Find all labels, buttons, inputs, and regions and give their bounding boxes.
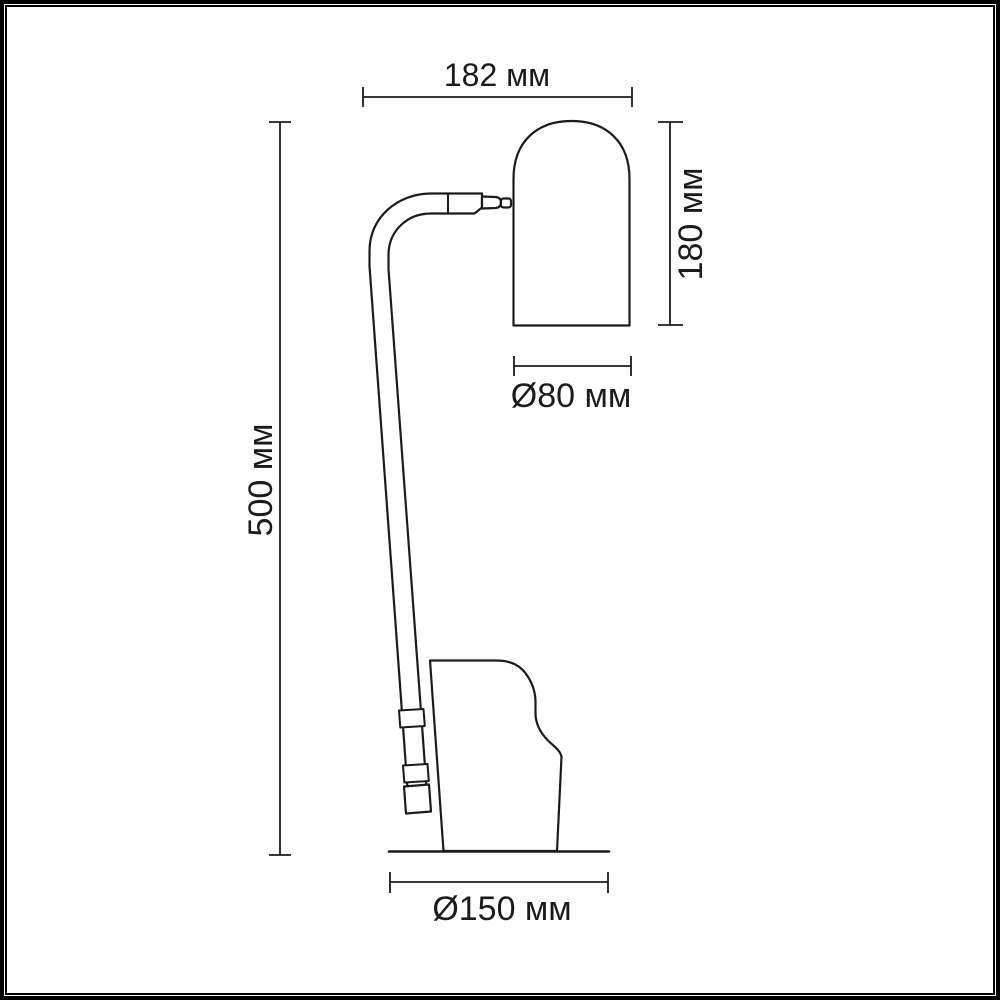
lamp-dimension-drawing: 182 мм 180 мм Ø80 мм 500 мм [0,0,1000,1000]
dim-total-height-label: 500 мм [242,424,280,537]
lamp-base-shape [430,661,562,852]
dim-head-width-label: 182 мм [444,57,550,93]
arm-connector-ring [501,199,511,208]
dim-total-height: 500 мм [242,122,291,855]
arm-foot-shape [404,785,431,814]
dim-base-diameter: Ø150 мм [390,872,608,928]
dim-shade-diameter-label: Ø80 мм [511,377,631,415]
lamp-head-shape [514,121,630,326]
arm-collar-lower [403,764,429,783]
dim-shade-diameter: Ø80 мм [511,356,631,415]
dim-head-height-label: 180 мм [672,168,710,281]
dim-head-width: 182 мм [363,57,632,107]
arm-connector [482,197,501,209]
dim-head-height: 180 мм [658,122,710,325]
page: 182 мм 180 мм Ø80 мм 500 мм [0,0,1000,1000]
arm-collar-upper [399,709,425,728]
dim-base-diameter-label: Ø150 мм [432,890,571,928]
